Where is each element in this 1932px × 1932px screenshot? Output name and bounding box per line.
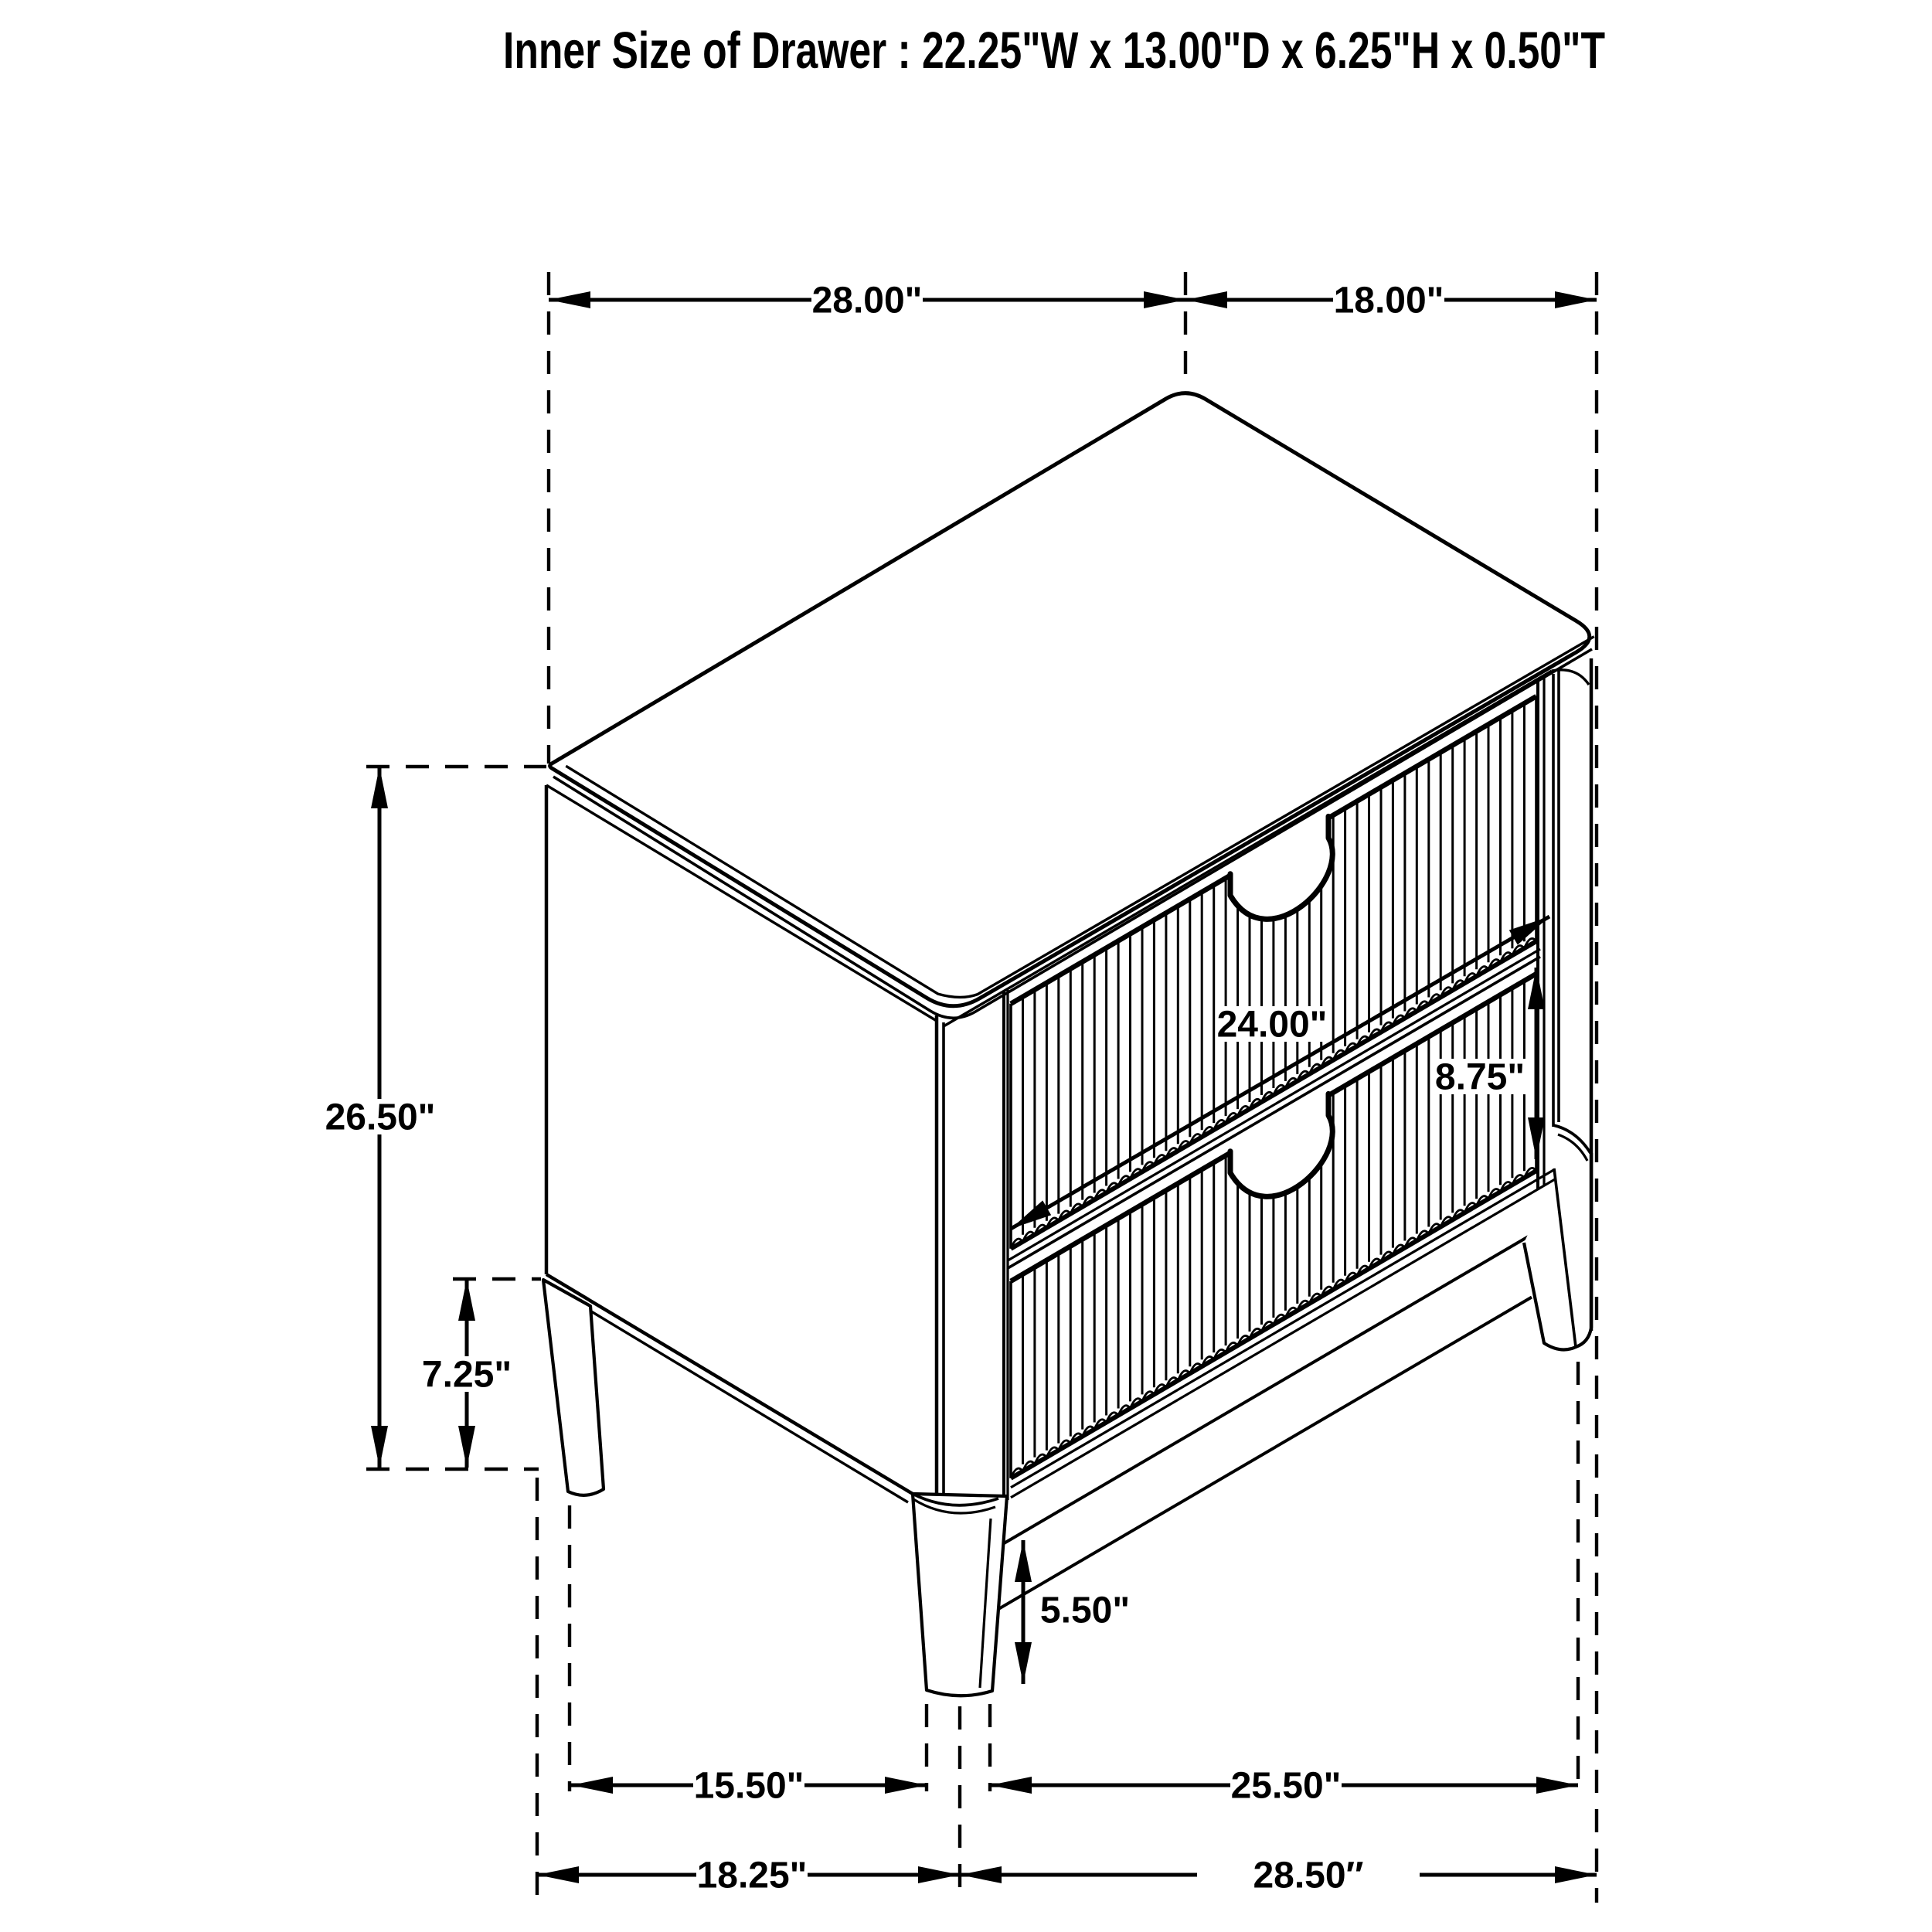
svg-text:Inner Size of Drawer : 22.25"W: Inner Size of Drawer : 22.25"W x 13.00"D… [503,22,1605,80]
svg-text:18.25": 18.25" [697,1855,808,1896]
svg-text:18.00": 18.00" [1334,281,1444,321]
svg-text:26.50": 26.50" [325,1097,436,1138]
svg-text:25.50": 25.50" [1231,1766,1342,1807]
svg-text:28.50″: 28.50″ [1253,1855,1363,1896]
svg-text:8.75": 8.75" [1435,1057,1525,1098]
svg-text:5.50": 5.50" [1040,1590,1130,1631]
svg-text:24.00": 24.00" [1217,1005,1328,1046]
svg-text:7.25": 7.25" [422,1355,512,1396]
svg-text:28.00": 28.00" [812,281,923,321]
svg-text:15.50": 15.50" [694,1766,804,1807]
